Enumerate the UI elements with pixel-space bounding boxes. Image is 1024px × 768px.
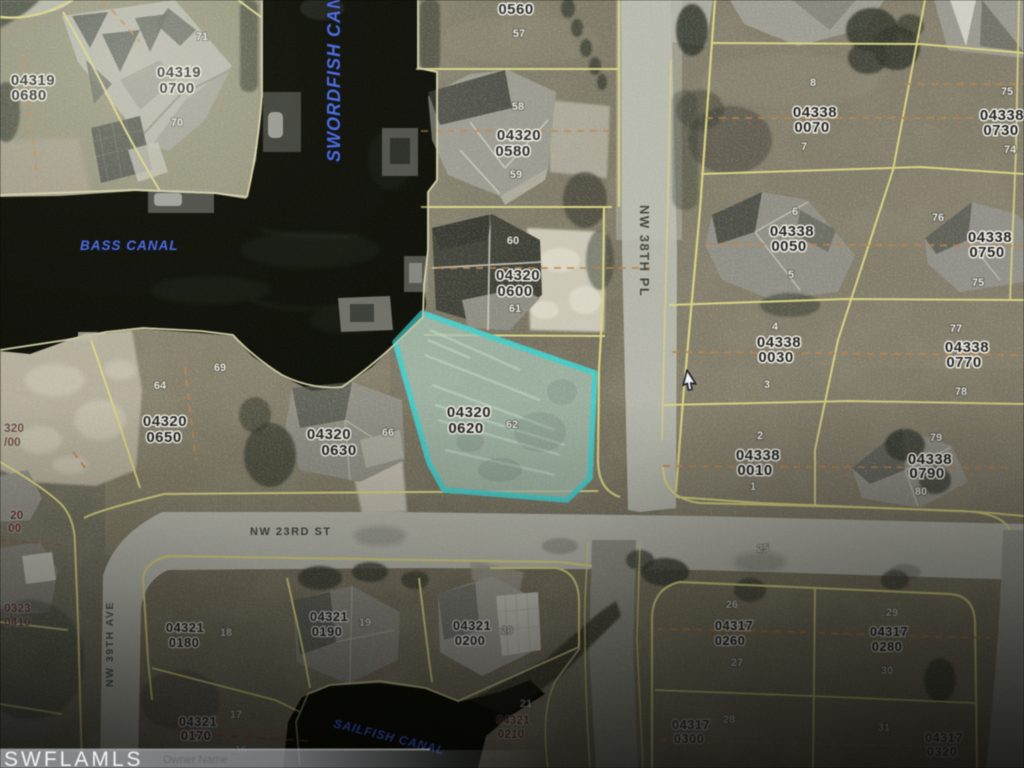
svg-text:Owner Name: Owner Name — [163, 754, 228, 766]
svg-text:SWFLAMLS: SWFLAMLS — [4, 748, 144, 768]
